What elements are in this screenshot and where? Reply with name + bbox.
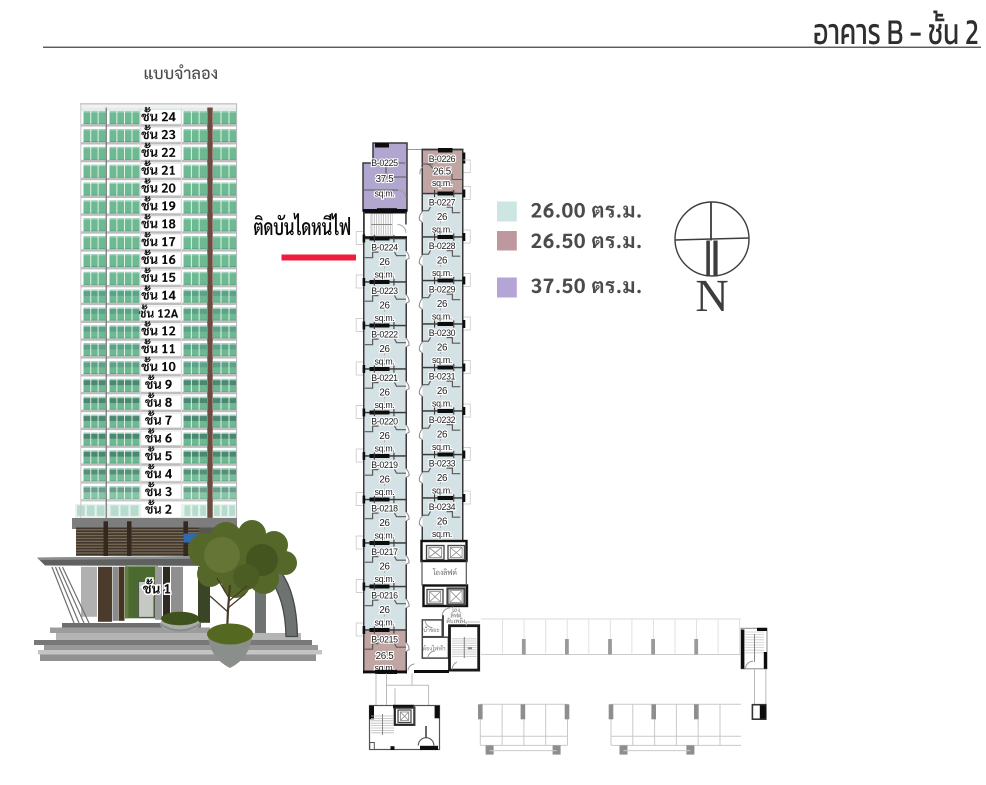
svg-text:B-0221: B-0221 (371, 373, 398, 383)
svg-text:B-0229: B-0229 (429, 285, 456, 295)
svg-text:sq.m.: sq.m. (432, 442, 452, 452)
svg-text:26: 26 (379, 344, 390, 355)
svg-text:26: 26 (379, 431, 390, 442)
svg-text:B-0234: B-0234 (429, 502, 456, 512)
svg-text:B-0216: B-0216 (371, 591, 398, 601)
svg-text:sq.m.: sq.m. (432, 398, 452, 408)
svg-text:B-0225: B-0225 (371, 158, 398, 168)
svg-text:sq.m.: sq.m. (374, 313, 394, 323)
svg-text:26: 26 (379, 474, 390, 485)
svg-text:B-0228: B-0228 (429, 241, 456, 251)
svg-text:sq.m.: sq.m. (432, 355, 452, 365)
svg-text:sq.m.: sq.m. (432, 529, 452, 539)
svg-text:B-0227: B-0227 (429, 198, 456, 208)
svg-text:37.5: 37.5 (376, 174, 395, 185)
svg-text:26: 26 (437, 516, 448, 527)
svg-text:B-0232: B-0232 (429, 415, 456, 425)
svg-text:B-0223: B-0223 (371, 286, 398, 296)
svg-text:B-0233: B-0233 (429, 459, 456, 469)
svg-text:26: 26 (437, 473, 448, 484)
svg-text:sq.m.: sq.m. (374, 530, 394, 540)
svg-text:B-0215: B-0215 (371, 635, 398, 645)
svg-text:B-0222: B-0222 (371, 330, 398, 340)
svg-text:26.5: 26.5 (433, 167, 452, 178)
svg-text:sq.m.: sq.m. (374, 617, 394, 627)
svg-text:26: 26 (379, 387, 390, 398)
svg-text:26: 26 (379, 300, 390, 311)
svg-text:sq.m.: sq.m. (374, 356, 394, 366)
svg-text:B-0218: B-0218 (371, 504, 398, 514)
svg-text:sq.m.: sq.m. (432, 224, 452, 234)
svg-text:B-0219: B-0219 (371, 460, 398, 470)
svg-text:sq.m.: sq.m. (432, 311, 452, 321)
svg-text:26: 26 (379, 605, 390, 616)
svg-text:B-0217: B-0217 (371, 547, 398, 557)
svg-text:26: 26 (379, 257, 390, 268)
svg-text:B-0231: B-0231 (429, 372, 456, 382)
svg-text:sq.m.: sq.m. (432, 178, 452, 188)
svg-text:26: 26 (437, 212, 448, 223)
svg-text:sq.m.: sq.m. (374, 269, 394, 279)
svg-text:sq.m.: sq.m. (374, 188, 394, 198)
svg-text:sq.m.: sq.m. (374, 487, 394, 497)
svg-text:26: 26 (437, 299, 448, 310)
svg-text:sq.m.: sq.m. (374, 400, 394, 410)
svg-text:B-0230: B-0230 (429, 328, 456, 338)
svg-text:26: 26 (437, 386, 448, 397)
svg-text:26: 26 (379, 518, 390, 529)
svg-text:26: 26 (437, 342, 448, 353)
svg-text:26: 26 (379, 561, 390, 572)
svg-text:B-0226: B-0226 (429, 154, 456, 164)
svg-text:26.5: 26.5 (376, 651, 395, 662)
svg-text:26: 26 (437, 255, 448, 266)
svg-text:sq.m.: sq.m. (432, 485, 452, 495)
svg-text:B-0224: B-0224 (371, 243, 398, 253)
svg-text:sq.m.: sq.m. (432, 268, 452, 278)
svg-text:sq.m.: sq.m. (374, 443, 394, 453)
svg-text:sq.m.: sq.m. (374, 574, 394, 584)
svg-text:B-0220: B-0220 (371, 417, 398, 427)
svg-text:26: 26 (437, 429, 448, 440)
